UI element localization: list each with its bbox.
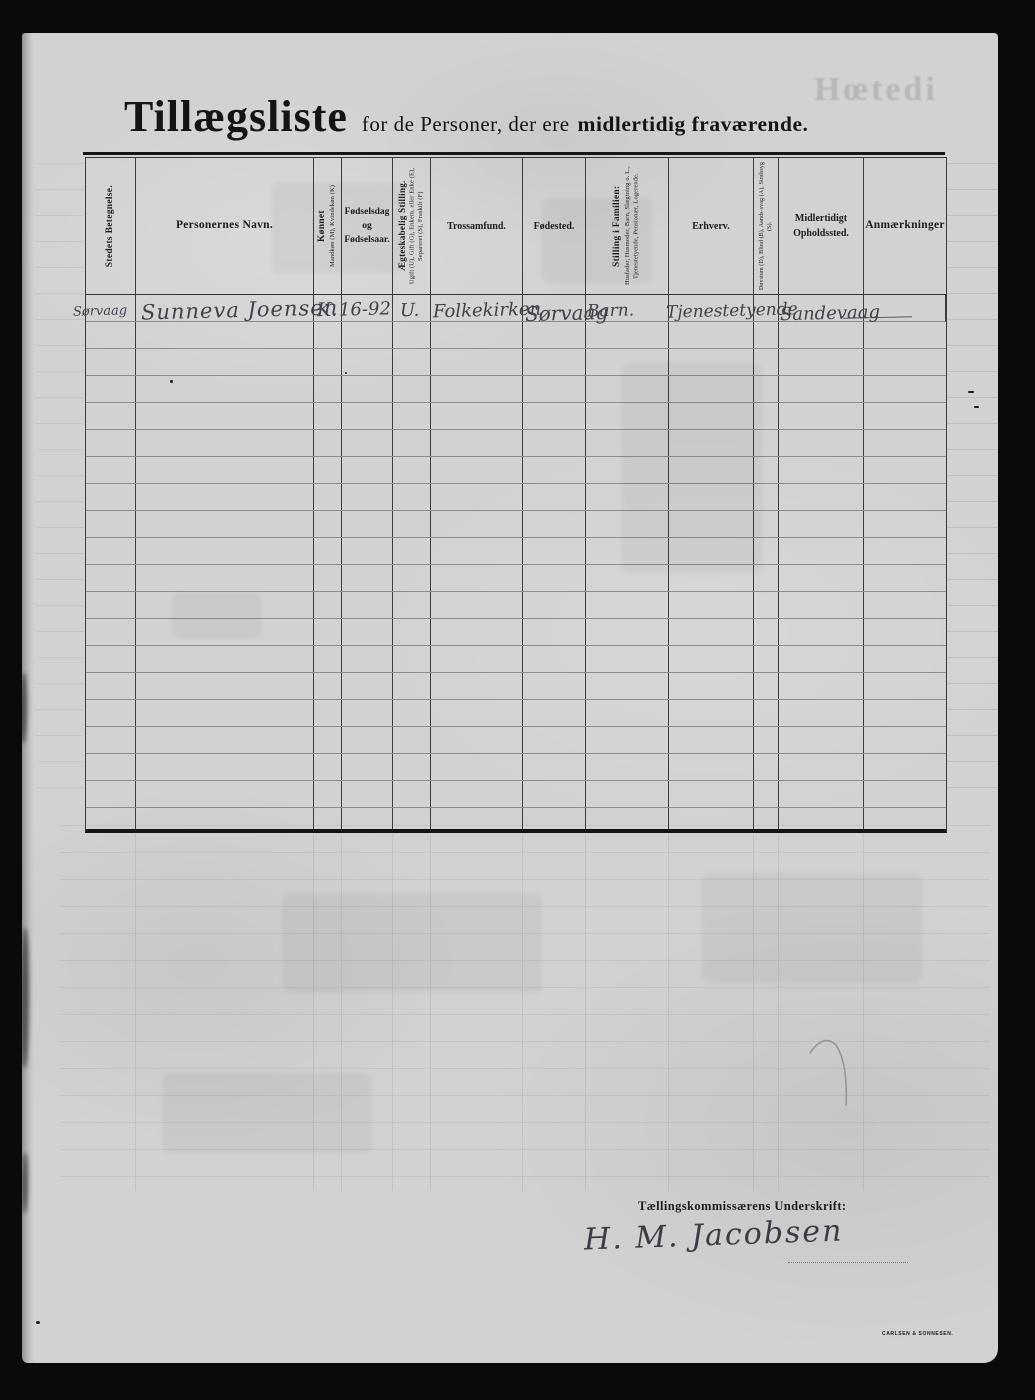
- table-cell: [431, 808, 523, 829]
- table-cell: [393, 700, 431, 726]
- ghost-grid-line: [60, 1041, 990, 1042]
- table-row-empty: [86, 349, 946, 376]
- table-cell: [136, 403, 314, 429]
- edge-smudge: [22, 928, 29, 1068]
- table-cell: [754, 538, 779, 564]
- table-cell: [342, 430, 393, 456]
- table-cell: [779, 727, 864, 753]
- table-cell: [86, 322, 136, 348]
- table-cell: [754, 376, 779, 402]
- ghost-grid-line: [60, 960, 990, 961]
- table-cell: [431, 781, 523, 807]
- table-row-empty: [86, 754, 946, 781]
- table-cell: [586, 349, 669, 375]
- table-cell: [523, 673, 586, 699]
- table-cell: [393, 349, 431, 375]
- table-cell: [314, 619, 342, 645]
- cell-trossamfund: Folkekirken: [431, 295, 523, 321]
- column-header-anmaerkninger: Anmærkninger: [864, 158, 946, 294]
- table-cell: [314, 808, 342, 829]
- pen-stroke-mark: [802, 1005, 872, 1115]
- table-cell: [314, 430, 342, 456]
- table-cell: [669, 646, 754, 672]
- table-cell: [342, 511, 393, 537]
- table-cell: [779, 673, 864, 699]
- table-cell: [779, 511, 864, 537]
- table-cell: [431, 322, 523, 348]
- title-main: Tillægsliste: [124, 91, 348, 142]
- table-cell: [523, 619, 586, 645]
- table-cell: [523, 538, 586, 564]
- table-cell: [314, 727, 342, 753]
- table-cell: [779, 808, 864, 829]
- table-cell: [669, 430, 754, 456]
- table-cell: [779, 700, 864, 726]
- table-cell: [393, 808, 431, 829]
- title-subtitle-bold: midlertidig fraværende.: [578, 112, 809, 137]
- scanned-census-form: Hœtedi Tillægsliste for de Personer, der…: [0, 0, 1035, 1400]
- table-cell: [586, 754, 669, 780]
- table-cell: [586, 592, 669, 618]
- table-cell: [136, 673, 314, 699]
- table-cell: [314, 349, 342, 375]
- ink-speck: [968, 391, 974, 393]
- table-cell: [136, 511, 314, 537]
- table-cell: [864, 727, 946, 753]
- entry-opholdssted: Sandevaag: [780, 302, 880, 326]
- table-row-empty: [86, 403, 946, 430]
- table-cell: [86, 349, 136, 375]
- table-cell: [779, 376, 864, 402]
- table-cell: [864, 322, 946, 348]
- table-cell: [586, 511, 669, 537]
- table-cell: [864, 673, 946, 699]
- table-cell: [86, 538, 136, 564]
- table-cell: [393, 322, 431, 348]
- table-cell: [669, 808, 754, 829]
- table-cell: [669, 565, 754, 591]
- table-cell: [864, 754, 946, 780]
- table-cell: [864, 484, 946, 510]
- table-cell: [586, 484, 669, 510]
- table-cell: [779, 781, 864, 807]
- table-cell: [431, 727, 523, 753]
- ghost-grid-line: [60, 879, 990, 880]
- table-cell: [754, 673, 779, 699]
- table-cell: [669, 484, 754, 510]
- table-cell: [431, 511, 523, 537]
- cell-erhverv: Tjenestetyende: [669, 295, 754, 321]
- table-cell: [314, 376, 342, 402]
- table-cell: [342, 403, 393, 429]
- table-row-empty: [86, 511, 946, 538]
- bleed-through-text: Hœtedi: [814, 71, 938, 109]
- table-cell: [86, 430, 136, 456]
- table-cell: [754, 781, 779, 807]
- column-header-dovstum: Døvstum (D), Blind (B), Aands-svag (A), …: [754, 158, 779, 294]
- table-cell: [754, 808, 779, 829]
- entry-fodselsdag: 16-92: [339, 298, 391, 320]
- table-cell: [314, 646, 342, 672]
- table-cell: [586, 781, 669, 807]
- column-header-opholdssted: Midlertidigt Opholdssted.: [779, 158, 864, 294]
- table-cell: [523, 592, 586, 618]
- table-cell: [342, 700, 393, 726]
- table-cell: [136, 808, 314, 829]
- table-cell: [86, 619, 136, 645]
- table-cell: [523, 646, 586, 672]
- cell-stedets: Sørvaag: [86, 295, 136, 321]
- table-cell: [779, 754, 864, 780]
- table-cell: [669, 700, 754, 726]
- cell-fodselsdag: 16-92: [342, 295, 393, 321]
- table-cell: [136, 727, 314, 753]
- table-cell: [669, 673, 754, 699]
- table-cell: [86, 457, 136, 483]
- ink-speck: [36, 1321, 40, 1324]
- printer-mark: CARLSEN & SONNESEN.: [882, 1331, 953, 1337]
- table-cell: [754, 484, 779, 510]
- table-header-row: Stedets Betegnelse. Personernes Navn. Kø…: [86, 158, 946, 295]
- table-cell: [586, 430, 669, 456]
- table-cell: [523, 700, 586, 726]
- title-subtitle: for de Personer, der ere: [362, 112, 570, 137]
- table-cell: [523, 565, 586, 591]
- table-cell: [86, 403, 136, 429]
- table-cell: [669, 403, 754, 429]
- table-cell: [523, 376, 586, 402]
- column-header-erhverv: Erhverv.: [669, 158, 754, 294]
- table-cell: [431, 700, 523, 726]
- ink-speck: [974, 406, 979, 408]
- table-cell: [586, 403, 669, 429]
- table-cell: [669, 511, 754, 537]
- column-header-konnet: Kønnet Mandkøn (M), Kvindekøn (K): [314, 158, 342, 294]
- table-cell: [779, 565, 864, 591]
- table-cell: [864, 619, 946, 645]
- table-cell: [314, 457, 342, 483]
- table-cell: [431, 754, 523, 780]
- table-cell: [864, 511, 946, 537]
- table-cell: [523, 808, 586, 829]
- ghost-grid-line: [392, 819, 393, 1191]
- table-cell: [754, 754, 779, 780]
- table-cell: [314, 484, 342, 510]
- table-cell: [86, 592, 136, 618]
- table-cell: [86, 511, 136, 537]
- table-cell: [586, 646, 669, 672]
- table-cell: [864, 646, 946, 672]
- ghost-grid-line: [430, 819, 431, 1191]
- table-cell: [431, 673, 523, 699]
- table-cell: [342, 754, 393, 780]
- table-cell: [754, 457, 779, 483]
- table-cell: [314, 700, 342, 726]
- ghost-grid-line: [753, 819, 754, 1191]
- table-row-empty: [86, 457, 946, 484]
- ghost-grid-line: [60, 1176, 990, 1177]
- table-cell: [431, 592, 523, 618]
- table-cell: [136, 322, 314, 348]
- table-row-empty: [86, 484, 946, 511]
- table-cell: [393, 592, 431, 618]
- table-cell: [669, 538, 754, 564]
- cell-stilling: Barn.: [586, 295, 669, 321]
- table-cell: [864, 565, 946, 591]
- ghost-grid-line: [60, 933, 990, 934]
- table-cell: [754, 322, 779, 348]
- table-cell: [393, 727, 431, 753]
- table-cell: [393, 538, 431, 564]
- table-cell: [586, 700, 669, 726]
- column-header-stilling: Stilling i Familien: Husfader, Husmoder,…: [586, 158, 669, 294]
- table-cell: [779, 592, 864, 618]
- entry-aegteskabelig: U.: [400, 300, 420, 321]
- table-cell: [523, 754, 586, 780]
- table-cell: [136, 565, 314, 591]
- table-cell: [342, 349, 393, 375]
- table-cell: [754, 700, 779, 726]
- table-cell: [754, 511, 779, 537]
- table-cell: [393, 403, 431, 429]
- ghost-grid-line: [60, 852, 990, 853]
- table-cell: [431, 484, 523, 510]
- table-cell: [779, 646, 864, 672]
- ink-speck: [170, 380, 173, 383]
- ghost-margin-lines-left: [36, 163, 84, 808]
- paper-sheet: Hœtedi Tillægsliste for de Personer, der…: [22, 33, 998, 1363]
- ghost-grid-line: [522, 819, 523, 1191]
- table-cell: [86, 808, 136, 829]
- edge-smudge: [22, 1153, 28, 1213]
- ghost-grid-line: [60, 1149, 990, 1150]
- table-cell: [393, 511, 431, 537]
- table-cell: [314, 403, 342, 429]
- table-cell: [864, 700, 946, 726]
- table-cell: [314, 538, 342, 564]
- table-row-empty: [86, 781, 946, 808]
- table-cell: [342, 484, 393, 510]
- table-cell: [523, 781, 586, 807]
- table-cell: [393, 457, 431, 483]
- table-cell: [779, 403, 864, 429]
- table-row-empty: [86, 808, 946, 829]
- table-cell: [393, 646, 431, 672]
- table-cell: [669, 457, 754, 483]
- table-cell: [86, 700, 136, 726]
- table-cell: [431, 376, 523, 402]
- cell-aegteskabelig: U.: [393, 295, 431, 321]
- table-cell: [669, 619, 754, 645]
- table-cell: [86, 484, 136, 510]
- table-cell: [86, 673, 136, 699]
- table-cell: [754, 619, 779, 645]
- table-cell: [342, 781, 393, 807]
- table-cell: [86, 727, 136, 753]
- table-row-empty: [86, 619, 946, 646]
- signature-dotted-line: [788, 1262, 908, 1263]
- table-cell: [342, 565, 393, 591]
- ghost-grid-line: [313, 819, 314, 1191]
- column-header-fodested: Fødested.: [523, 158, 586, 294]
- table-cell: [864, 403, 946, 429]
- table-cell: [779, 484, 864, 510]
- signature-name: H. M. Jacobsen: [583, 1213, 844, 1257]
- table-cell: [136, 646, 314, 672]
- table-cell: [586, 808, 669, 829]
- table-cell: [136, 781, 314, 807]
- table-cell: [431, 349, 523, 375]
- table-cell: [136, 430, 314, 456]
- table-cell: [864, 457, 946, 483]
- table-cell: [393, 376, 431, 402]
- table-cell: [754, 565, 779, 591]
- table-row-empty: [86, 322, 946, 349]
- table-row-empty: [86, 727, 946, 754]
- table-cell: [136, 457, 314, 483]
- ghost-grid-line: [60, 1122, 990, 1123]
- table-cell: [86, 565, 136, 591]
- table-cell: [669, 376, 754, 402]
- table-row-empty: [86, 430, 946, 457]
- table-body: [86, 322, 946, 829]
- table-cell: [586, 727, 669, 753]
- page-title: Tillægsliste for de Personer, der ere mi…: [124, 91, 808, 142]
- table-cell: [864, 349, 946, 375]
- ink-speck: [345, 372, 347, 374]
- table-cell: [136, 538, 314, 564]
- bleed-smudge: [282, 893, 542, 993]
- census-table: Stedets Betegnelse. Personernes Navn. Kø…: [85, 157, 947, 833]
- table-cell: [586, 619, 669, 645]
- table-cell: [136, 349, 314, 375]
- table-cell: [864, 376, 946, 402]
- table-cell: [754, 646, 779, 672]
- entry-navn: Sunneva Joensen: [141, 295, 339, 324]
- ghost-grid-line: [60, 1068, 990, 1069]
- ghost-grid-line: [863, 819, 864, 1191]
- table-cell: [342, 619, 393, 645]
- table-cell: [431, 538, 523, 564]
- table-cell: [431, 457, 523, 483]
- table-cell: [523, 511, 586, 537]
- entry-erhverv: Tjenestetyende: [666, 299, 798, 322]
- table-cell: [586, 538, 669, 564]
- table-row-empty: [86, 565, 946, 592]
- table-cell: [136, 592, 314, 618]
- table-cell: [669, 727, 754, 753]
- table-cell: [586, 565, 669, 591]
- table-cell: [393, 619, 431, 645]
- table-cell: [523, 727, 586, 753]
- table-cell: [314, 511, 342, 537]
- ghost-grid-line: [60, 906, 990, 907]
- table-cell: [431, 646, 523, 672]
- ghost-margin-lines-right: [947, 163, 998, 808]
- table-cell: [523, 484, 586, 510]
- table-cell: [864, 592, 946, 618]
- table-cell: [314, 592, 342, 618]
- table-cell: [669, 322, 754, 348]
- table-cell: [779, 619, 864, 645]
- table-cell: [779, 349, 864, 375]
- table-cell: [864, 808, 946, 829]
- table-cell: [136, 376, 314, 402]
- title-rule: [83, 152, 945, 155]
- table-cell: [864, 430, 946, 456]
- table-cell: [136, 754, 314, 780]
- table-cell: [393, 430, 431, 456]
- table-cell: [779, 457, 864, 483]
- table-cell: [669, 349, 754, 375]
- ghost-grid-line: [60, 1095, 990, 1096]
- table-row-empty: [86, 700, 946, 727]
- table-cell: [779, 430, 864, 456]
- table-cell: [586, 322, 669, 348]
- table-cell: [342, 673, 393, 699]
- table-cell: [779, 538, 864, 564]
- edge-smudge: [22, 673, 27, 743]
- table-cell: [342, 376, 393, 402]
- table-cell: [669, 592, 754, 618]
- table-cell: [393, 781, 431, 807]
- table-cell: [523, 403, 586, 429]
- table-cell: [754, 403, 779, 429]
- table-cell: [431, 565, 523, 591]
- table-cell: [342, 538, 393, 564]
- cell-navn: Sunneva Joensen: [136, 295, 314, 321]
- table-cell: [523, 430, 586, 456]
- table-cell: [393, 565, 431, 591]
- ghost-grid-line: [60, 1014, 990, 1015]
- table-row-empty: [86, 673, 946, 700]
- bleed-smudge: [162, 1073, 372, 1153]
- table-row-filled: Sørvaag Sunneva Joensen K. 16-92 U. Folk…: [86, 295, 946, 322]
- table-cell: [86, 781, 136, 807]
- ghost-grid-line: [668, 819, 669, 1191]
- signature-label: Tællingskommissærens Underskrift:: [638, 1199, 846, 1214]
- table-cell: [314, 754, 342, 780]
- table-cell: [86, 754, 136, 780]
- table-cell: [86, 376, 136, 402]
- table-cell: [86, 646, 136, 672]
- table-cell: [754, 349, 779, 375]
- table-cell: [523, 349, 586, 375]
- table-cell: [342, 646, 393, 672]
- column-header-stedets: Stedets Betegnelse.: [86, 158, 136, 294]
- table-cell: [754, 430, 779, 456]
- table-cell: [669, 781, 754, 807]
- table-cell: [314, 673, 342, 699]
- ghost-grid-bleed: [85, 819, 945, 1191]
- bleed-smudge: [702, 873, 922, 983]
- column-header-trossamfund: Trossamfund.: [431, 158, 523, 294]
- column-header-navn: Personernes Navn.: [136, 158, 314, 294]
- table-cell: [314, 565, 342, 591]
- table-row-empty: [86, 592, 946, 619]
- table-row-empty: [86, 376, 946, 403]
- table-cell: [393, 754, 431, 780]
- ghost-grid-line: [341, 819, 342, 1191]
- table-cell: [754, 592, 779, 618]
- table-cell: [779, 322, 864, 348]
- table-cell: [393, 484, 431, 510]
- table-cell: [431, 619, 523, 645]
- table-cell: [136, 484, 314, 510]
- table-cell: [314, 322, 342, 348]
- table-cell: [136, 619, 314, 645]
- entry-stilling: Barn.: [587, 300, 635, 321]
